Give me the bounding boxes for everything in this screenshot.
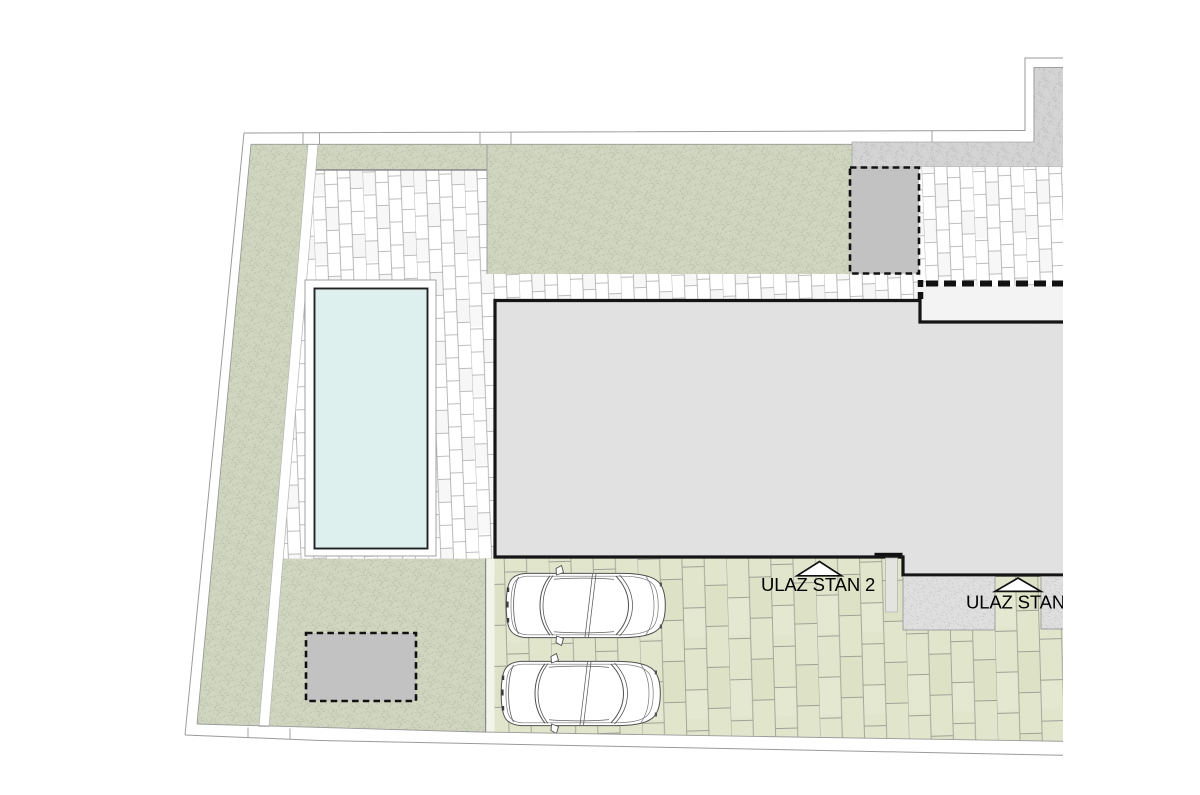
svg-text:ULAZ STAN 2: ULAZ STAN 2 (761, 574, 875, 595)
